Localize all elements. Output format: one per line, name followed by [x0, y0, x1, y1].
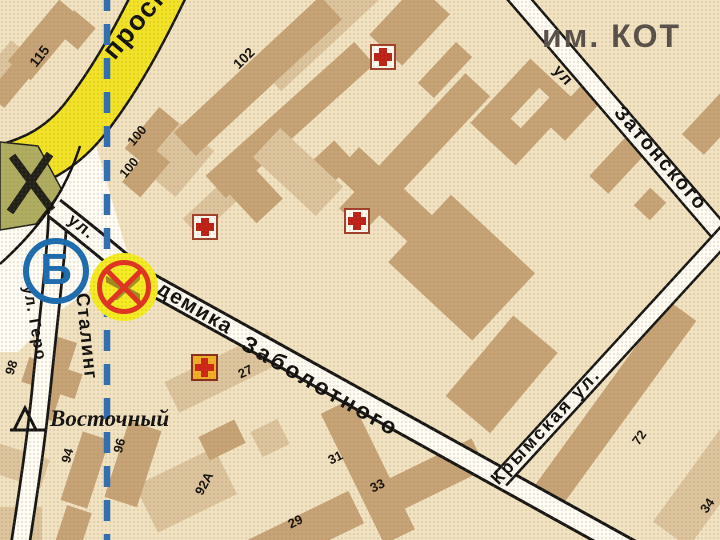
hospital-cross-icon	[370, 44, 396, 70]
building-footprint	[52, 505, 92, 540]
building-footprint	[61, 431, 110, 508]
hospital-cross-icon	[344, 208, 370, 234]
building-footprint	[245, 491, 364, 540]
building-footprint	[634, 188, 666, 221]
map-canvas[interactable]: просп ул. Академика Заболотного ул. Геро…	[0, 0, 720, 540]
route-terminal-marker: Б	[23, 238, 89, 304]
building-footprint	[682, 93, 720, 154]
hospital-cross-icon	[192, 214, 218, 240]
market-scales-icon	[10, 402, 48, 440]
crossed-out-marker	[90, 253, 158, 321]
building-footprint	[653, 425, 720, 540]
route-terminal-letter: Б	[40, 245, 72, 294]
market-label: Восточный	[50, 406, 169, 432]
pharmacy-cross-icon	[191, 354, 218, 381]
building-footprint	[250, 419, 289, 457]
district-label: им. КОТ	[542, 18, 681, 55]
